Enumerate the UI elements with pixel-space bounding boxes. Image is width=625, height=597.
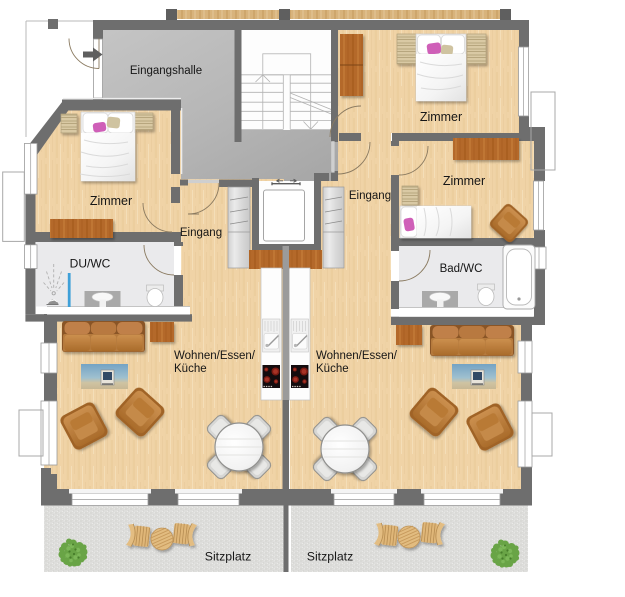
svg-text:Bad/WC: Bad/WC: [440, 263, 483, 275]
svg-text:Sitzplatz: Sitzplatz: [205, 550, 251, 564]
svg-text:Küche: Küche: [174, 363, 207, 375]
svg-text:Wohnen/Essen/: Wohnen/Essen/: [174, 350, 256, 362]
svg-text:Zimmer: Zimmer: [90, 194, 132, 208]
svg-text:Sitzplatz: Sitzplatz: [307, 550, 353, 564]
svg-text:Küche: Küche: [316, 363, 349, 375]
svg-text:DU/WC: DU/WC: [70, 257, 111, 271]
svg-text:Eingang: Eingang: [349, 190, 391, 202]
svg-text:Zimmer: Zimmer: [420, 110, 462, 124]
svg-text:Wohnen/Essen/: Wohnen/Essen/: [316, 350, 398, 362]
svg-text:Eingangshalle: Eingangshalle: [130, 65, 202, 77]
svg-text:Zimmer: Zimmer: [443, 174, 485, 188]
svg-text:Eingang: Eingang: [180, 227, 222, 239]
